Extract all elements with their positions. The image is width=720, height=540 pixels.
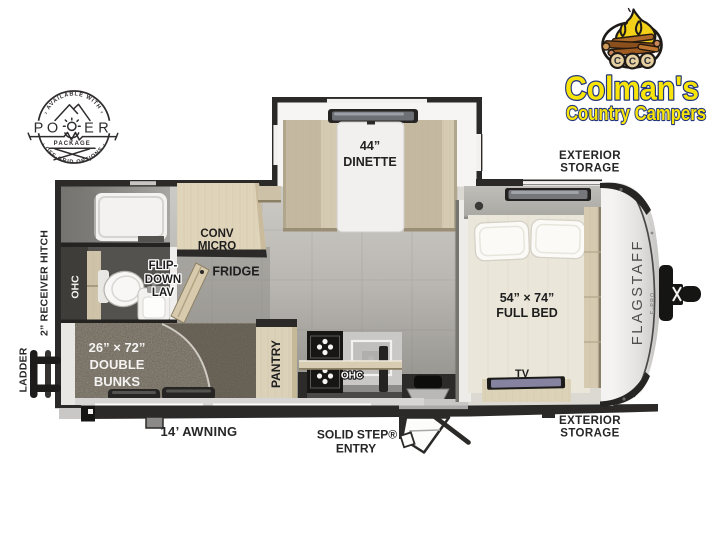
svg-text:PANTRY: PANTRY [269,340,283,388]
svg-text:14’ AWNING: 14’ AWNING [161,424,238,439]
svg-text:E-PRO: E-PRO [650,292,656,314]
svg-text:EXTERIOR: EXTERIOR [559,150,621,162]
svg-text:BUNKS: BUNKS [94,374,141,389]
svg-text:OHC: OHC [341,371,363,382]
svg-text:R: R [98,120,108,136]
svg-text:C: C [644,56,651,67]
svg-text:LADDER: LADDER [18,347,30,392]
svg-text:SOLID STEP®: SOLID STEP® [317,428,397,442]
svg-text:FULL BED: FULL BED [496,306,558,320]
svg-text:LAV: LAV [152,287,174,299]
svg-text:E: E [84,120,94,136]
svg-text:Country Campers: Country Campers [566,102,706,125]
svg-text:MICRO: MICRO [198,241,236,253]
svg-text:STORAGE: STORAGE [560,428,619,440]
svg-text:FRIDGE: FRIDGE [212,265,259,279]
svg-text:26” × 72”: 26” × 72” [89,340,146,355]
svg-text:STORAGE: STORAGE [560,163,619,175]
svg-text:44”: 44” [360,139,380,153]
svg-text:ENTRY: ENTRY [336,442,376,456]
svg-text:P: P [34,120,44,136]
svg-text:OHC: OHC [70,275,82,299]
svg-text:C: C [629,57,636,68]
svg-text:C: C [614,56,621,67]
svg-text:2” RECEIVER HITCH: 2” RECEIVER HITCH [39,230,51,336]
svg-text:O: O [47,120,58,136]
svg-text:DOUBLE: DOUBLE [90,357,145,372]
svg-text:FLAGSTAFF: FLAGSTAFF [630,239,646,345]
svg-text:54” × 74”: 54” × 74” [500,291,555,305]
svg-text:PACKAGE: PACKAGE [54,141,91,147]
svg-text:DINETTE: DINETTE [343,155,396,169]
svg-text:Colman's: Colman's [565,70,699,107]
svg-text:FLIP-: FLIP- [149,260,178,272]
svg-text:› AVAILABLE WITH ‹: › AVAILABLE WITH ‹ [43,91,105,115]
svg-text:CONV: CONV [200,228,234,240]
svg-text:DOWN: DOWN [145,274,181,286]
svg-text:EXTERIOR: EXTERIOR [559,415,621,427]
